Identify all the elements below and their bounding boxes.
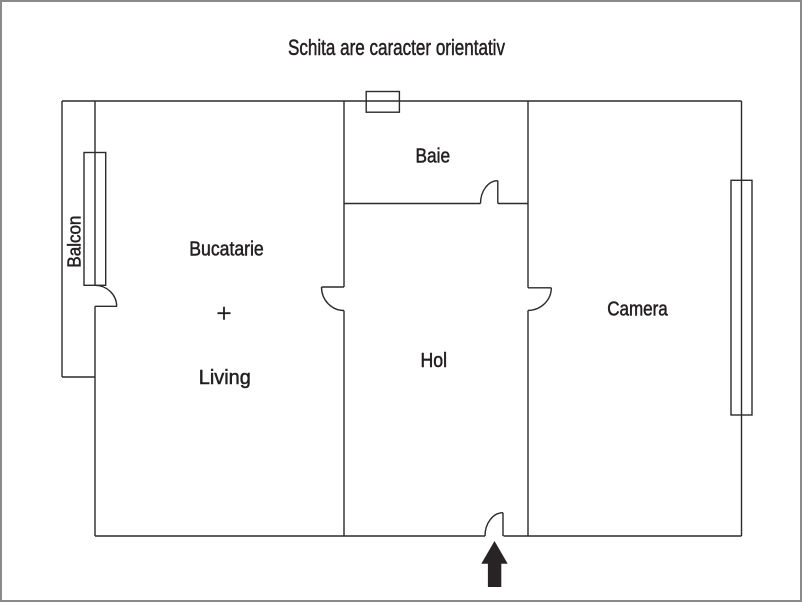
svg-text:Balcon: Balcon <box>63 216 84 268</box>
svg-text:Baie: Baie <box>416 146 451 168</box>
svg-text:Camera: Camera <box>607 299 668 321</box>
svg-text:Schita are caracter orientativ: Schita are caracter orientativ <box>288 35 506 60</box>
svg-text:Hol: Hol <box>421 350 448 372</box>
svg-text:Bucatarie: Bucatarie <box>189 238 264 260</box>
svg-text:Living: Living <box>199 367 251 389</box>
